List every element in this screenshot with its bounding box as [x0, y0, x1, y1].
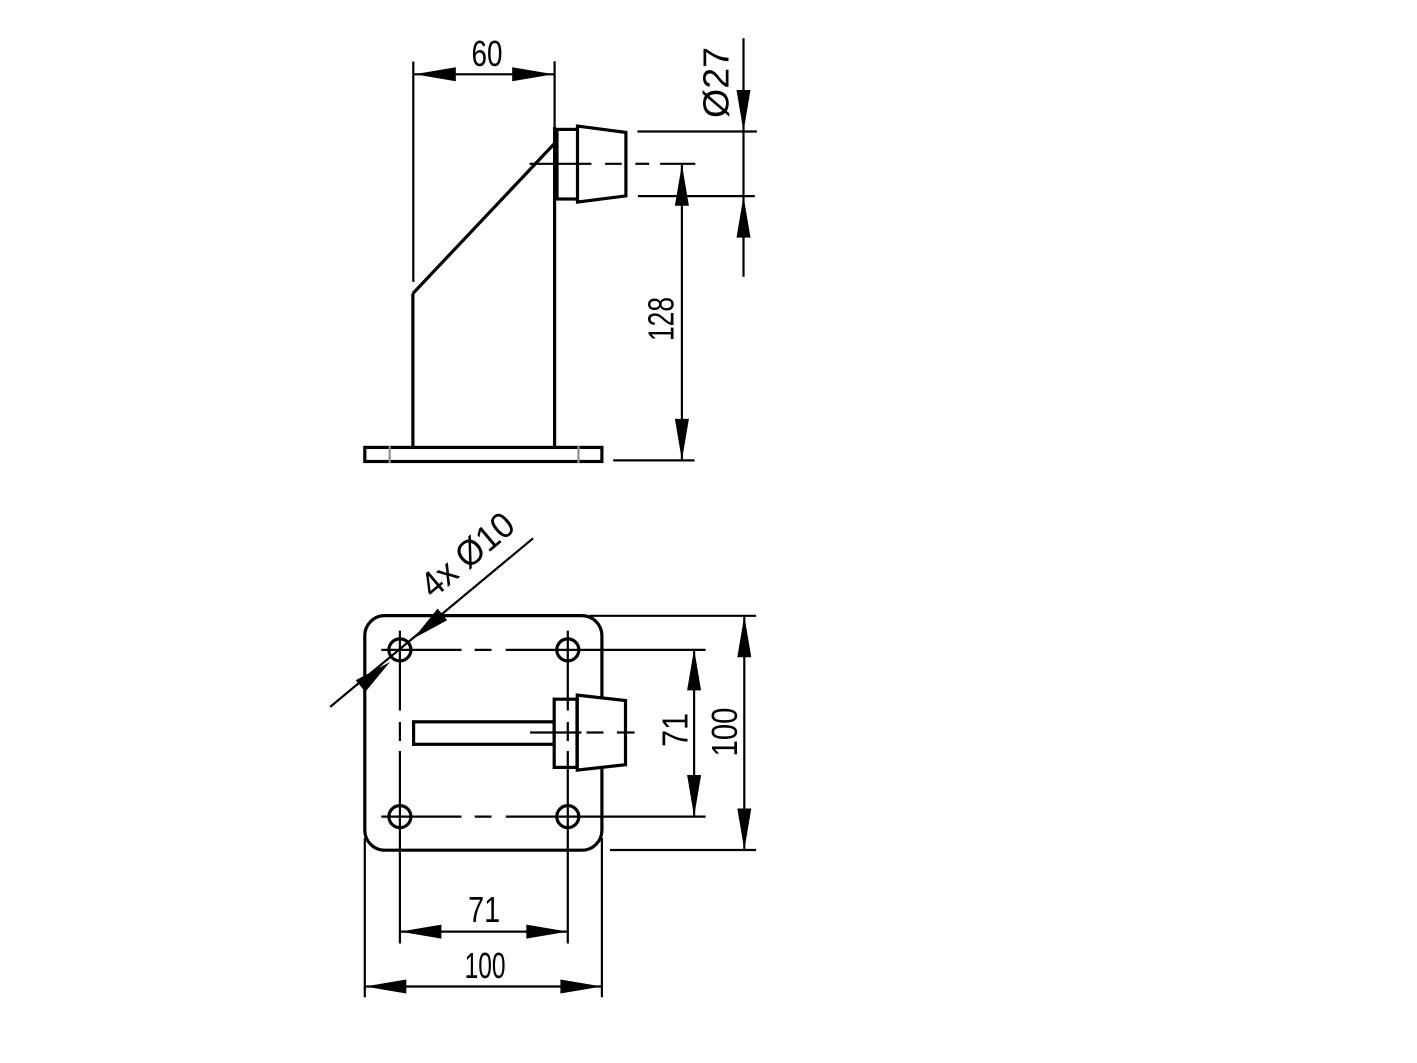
- svg-text:100: 100: [465, 945, 506, 986]
- svg-text:128: 128: [641, 297, 682, 341]
- svg-text:60: 60: [472, 33, 503, 74]
- svg-text:71: 71: [468, 889, 500, 930]
- svg-text:71: 71: [655, 713, 696, 747]
- svg-text:100: 100: [704, 708, 745, 757]
- svg-text:Ø27: Ø27: [696, 47, 737, 118]
